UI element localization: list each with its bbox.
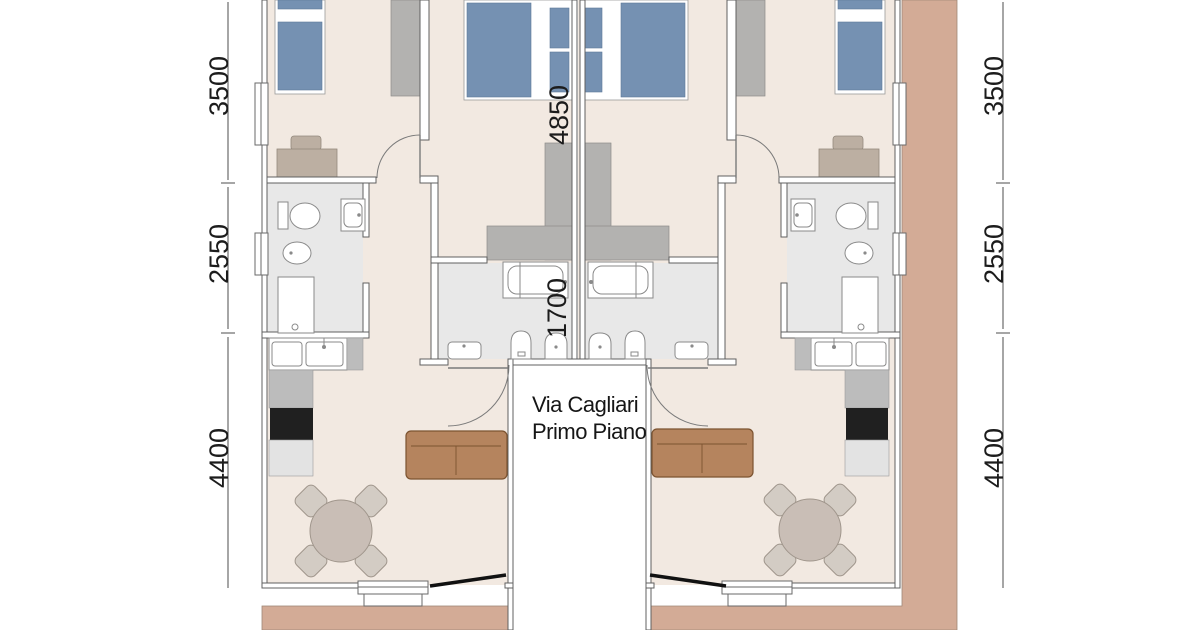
pillow [583,8,602,48]
hall-wall-right [718,183,725,365]
wall-junction-left [420,176,438,183]
stairwell-wall-right [646,359,651,630]
dim-label-left-3500: 3500 [204,56,234,116]
dining-table [310,500,372,562]
plan-title-line2: Primo Piano [532,419,647,444]
sofa-right [652,429,753,477]
closet-wing-left [487,226,572,260]
pillow [583,52,602,92]
vanity-sink-left [448,342,481,359]
cooktop [270,408,313,440]
bath-wall-left-b [363,283,369,338]
wardrobe-right [736,0,765,96]
vanity-sink-right [675,342,708,359]
dining-table [779,499,841,561]
hall-wall-left [431,183,438,365]
bathtub-right [588,262,653,298]
bottom-stub-left [505,583,513,588]
bedroom-divider-left [420,0,429,140]
dim-label-right-4400: 4400 [979,428,1009,488]
plan-title-line1: Via Cagliari [532,392,638,417]
entry-wall-stub-left [420,359,448,365]
closet-wing-right [584,226,669,260]
window-sill-bottom-left [364,594,422,606]
single-bed-right [835,0,885,94]
dim-label-center-1700: 1700 [542,278,572,338]
toilet-left [278,202,320,229]
shower-right [842,277,878,333]
closet-wall-left [431,257,487,263]
party-wall-a [572,0,577,359]
stairwell-wall-left [508,359,513,630]
sofa-left [406,431,507,479]
single-bed-left [275,0,325,94]
balcony-left-strip [262,606,510,630]
bath-wall-right-b [781,283,787,338]
bidet-right [845,242,873,264]
bottom-wall-left [262,583,360,588]
bidet-left [283,242,311,264]
wardrobe-left [391,0,420,96]
double-bed-right [580,0,688,100]
stairwell-top-wall [513,359,651,365]
window-sill-bottom-right [728,594,786,606]
cooktop [846,408,888,440]
dim-label-left-2550: 2550 [204,224,234,284]
dim-label-right-2550: 2550 [979,224,1009,284]
pillow [550,8,569,48]
bedroom-divider-right [727,0,736,140]
wall-junction-right [718,176,736,183]
bottom-stub-right [646,583,654,588]
sink-left [341,199,365,231]
floor-plan-page: 3500 2550 4400 3500 2550 4400 4850 1700 … [0,0,1200,630]
dim-label-center-4850: 4850 [544,85,574,145]
closet-wall-right [669,257,718,263]
toilet-right [836,202,878,229]
bedroom-wall-right [779,177,895,183]
dim-label-right-3500: 3500 [979,56,1009,116]
floor-plan-svg: 3500 2550 4400 3500 2550 4400 4850 1700 … [0,0,1200,630]
dim-label-left-4400: 4400 [204,428,234,488]
shower-left [278,277,314,333]
bottom-wall-right [790,583,895,588]
entry-wall-stub-right [708,359,736,365]
party-wall-b [580,0,585,359]
bath-bottom-wall-right [781,332,900,338]
sink-right [791,199,815,231]
bedroom-wall-left [267,177,376,183]
bath-wall-right-a [781,183,787,237]
